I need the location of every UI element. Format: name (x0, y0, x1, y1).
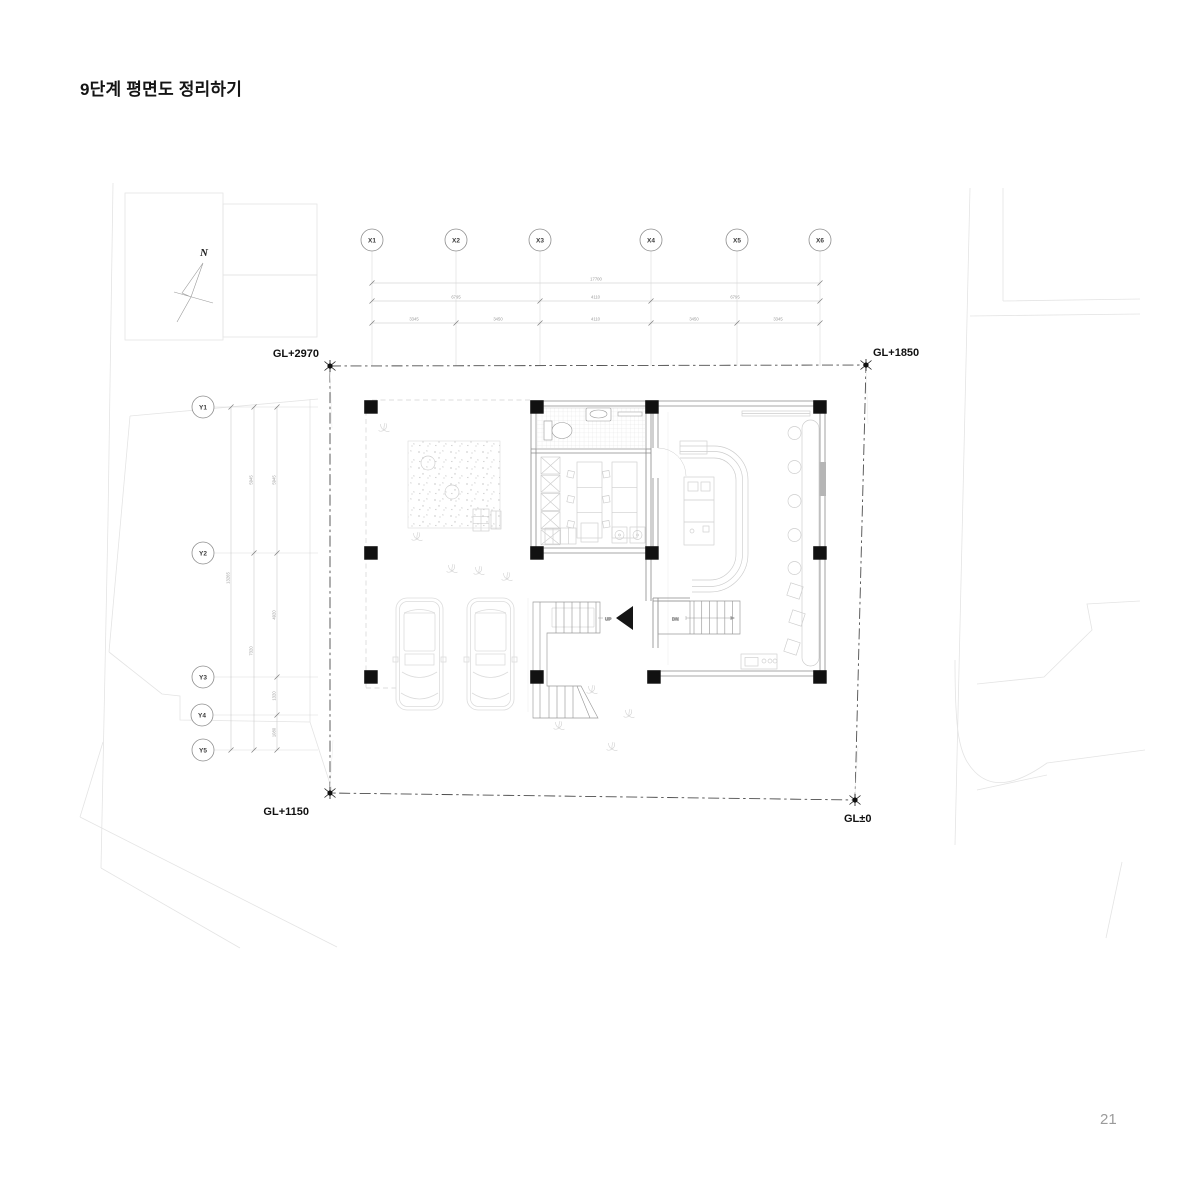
svg-text:X6: X6 (816, 237, 824, 244)
svg-text:X4: X4 (647, 237, 655, 244)
grid-bubble-x5: X5 (726, 229, 748, 251)
stair-up: UP (533, 602, 611, 718)
svg-text:X3: X3 (536, 237, 544, 244)
car (464, 598, 517, 710)
bathroom (536, 408, 646, 449)
stair-down: DN (658, 601, 740, 634)
grid-bubble-x6: X6 (809, 229, 831, 251)
shelving-x-braced (541, 457, 560, 545)
dimension-label: 6795 (730, 295, 740, 300)
dimension-label: 4920 (272, 610, 277, 620)
kitchen (541, 457, 645, 545)
planting-area (408, 441, 500, 528)
grid-bubble-x3: X3 (529, 229, 551, 251)
benchmark-icon (850, 794, 861, 806)
grid-bubbles: X1 X2 X3 X4 X5 X6 Y1 Y2 Y3 Y4 Y5 (191, 229, 831, 761)
grid-bubble-x1: X1 (361, 229, 383, 251)
bar-table (788, 420, 819, 666)
dimension-label: 5945 (272, 475, 277, 485)
north-label: N (199, 247, 209, 259)
grid-bubble-x4: X4 (640, 229, 662, 251)
dimension-label: 17700 (590, 277, 602, 282)
north-arrow: N (174, 247, 213, 322)
benchmark-icon (861, 359, 872, 371)
cafe-area (680, 411, 819, 669)
dimension-label: 13265 (226, 572, 231, 584)
grid-bubble-y3: Y3 (192, 666, 214, 688)
dimension-label: 3450 (493, 317, 503, 322)
toilet (544, 421, 572, 440)
svg-text:X5: X5 (733, 237, 741, 244)
level-label-bottom-right: GL±0 (844, 813, 871, 825)
low-table (741, 654, 777, 669)
site-context (80, 183, 1145, 948)
level-label-bottom-left: GL+1150 (263, 806, 309, 818)
car (393, 598, 446, 710)
entrance-arrow (616, 606, 633, 630)
bath-shelf (618, 412, 642, 416)
level-label-top-left: GL+2970 (273, 348, 319, 360)
grid-bubble-x2: X2 (445, 229, 467, 251)
dimension-label: 6795 (451, 295, 461, 300)
dimension-label: 3450 (689, 317, 699, 322)
grid-bubble-y2: Y2 (192, 542, 214, 564)
sink (586, 408, 611, 421)
parking-cars (393, 598, 517, 710)
dn-label: DN (672, 617, 679, 622)
svg-text:X1: X1 (368, 237, 376, 244)
svg-text:Y3: Y3 (199, 674, 207, 681)
dimension-label: 3345 (773, 317, 783, 322)
svg-text:Y5: Y5 (199, 747, 207, 754)
svg-text:Y2: Y2 (199, 550, 207, 557)
work-tables (567, 462, 637, 538)
dimension-label: 4110 (591, 317, 601, 322)
svg-text:Y4: Y4 (198, 712, 206, 719)
svg-text:X2: X2 (452, 237, 460, 244)
level-label-top-right: GL+1850 (873, 347, 919, 359)
dimension-label: 1320 (272, 691, 277, 701)
grid-bubble-y1: Y1 (192, 396, 214, 418)
grid-bubble-y5: Y5 (192, 739, 214, 761)
dimension-label: 5945 (249, 475, 254, 485)
dimension-label: 3345 (409, 317, 419, 322)
floor-plan-drawing: N X1 X2 X3 X4 X5 X6 Y1 Y2 Y3 Y4 Y5 17700… (0, 0, 1200, 1200)
grid-bubble-y4: Y4 (191, 704, 213, 726)
counter-island (684, 477, 714, 545)
dimension-label: 4110 (591, 295, 601, 300)
dimension-label: 1080 (272, 727, 277, 737)
up-label: UP (605, 617, 611, 622)
dimension-label: 7320 (249, 646, 254, 656)
svg-text:Y1: Y1 (199, 404, 207, 411)
